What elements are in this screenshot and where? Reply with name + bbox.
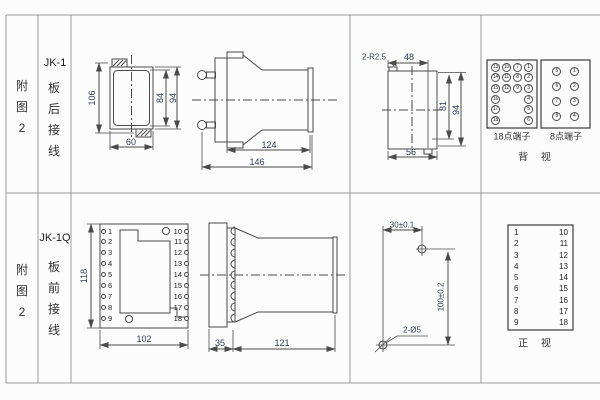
jk1-side-view — [192, 52, 338, 170]
terminal-circle — [184, 272, 189, 277]
terminal-row-1: 1 — [101, 227, 123, 235]
table-number-18: 18 — [559, 318, 568, 327]
terminal-circle — [184, 229, 189, 234]
terminal-number: 2 — [108, 237, 112, 246]
terminal-circle — [184, 239, 189, 244]
table-number-5: 5 — [514, 273, 518, 282]
terminal-8-label: 8点端子 — [550, 130, 582, 143]
terminal-16: 16 — [491, 95, 500, 104]
dim-118: 118 — [79, 269, 89, 283]
row2-model-label: JK-1Q — [38, 232, 72, 244]
terminal-circle — [101, 283, 106, 288]
terminal-number: 5 — [108, 270, 112, 279]
terminal-row-10: 10 — [163, 227, 189, 235]
dim-hole-spec: 2-Ø5 — [403, 326, 421, 335]
terminal-number: 14 — [174, 270, 182, 279]
dim-84: 84 — [155, 93, 165, 103]
drawing-sheet: 附图2 JK-1 板后接线 附图2 JK-1Q 板前接线 106 84 94 6… — [0, 0, 600, 400]
qfront-right-terminals: 101112131415161718 — [163, 227, 189, 322]
dim-146: 146 — [249, 157, 264, 167]
dim-30: 30±0.1 — [390, 221, 414, 230]
terminal-row-6: 6 — [101, 281, 123, 289]
terminal-3: 3 — [570, 97, 579, 106]
terminal-circle — [101, 294, 106, 299]
terminal-1: 1 — [570, 67, 579, 76]
terminal-number: 6 — [108, 281, 112, 290]
terminal-grid-18: 131071141182151293164175186 — [487, 60, 537, 128]
terminal-4: 4 — [524, 95, 533, 104]
terminal-circle — [184, 261, 189, 266]
terminal-row-3: 3 — [101, 249, 123, 257]
table-number-8: 8 — [514, 307, 518, 316]
terminal-18: 18 — [491, 116, 500, 125]
table-number-13: 13 — [559, 262, 568, 271]
table-number-10: 10 — [559, 228, 568, 237]
terminal-row-11: 11 — [163, 238, 189, 246]
terminal-15: 15 — [491, 84, 500, 93]
terminal-5: 5 — [524, 105, 533, 114]
terminal-row-5: 5 — [101, 271, 123, 279]
terminal-9: 9 — [513, 84, 522, 93]
terminal-7: 7 — [552, 97, 561, 106]
terminal-number: 4 — [108, 259, 112, 268]
terminal-row-7: 7 — [101, 292, 123, 300]
terminal-number: 17 — [174, 303, 182, 312]
dim-35: 35 — [215, 338, 225, 348]
row2-wiring-label: 板前接线 — [46, 257, 62, 341]
dim-121: 121 — [274, 338, 289, 348]
table-number-15: 15 — [559, 284, 568, 293]
dim-60: 60 — [126, 137, 136, 147]
terminal-circle — [101, 316, 106, 321]
terminal-number: 12 — [174, 248, 182, 257]
terminal-18-label: 18点端子 — [493, 130, 530, 143]
terminal-row-15: 15 — [163, 281, 189, 289]
terminal-circle — [184, 316, 189, 321]
terminal-circle — [184, 283, 189, 288]
terminal-row-8: 8 — [101, 303, 123, 311]
terminal-11: 11 — [502, 73, 511, 82]
terminal-5: 5 — [552, 67, 561, 76]
row1-wiring-label: 板后接线 — [46, 78, 62, 162]
terminal-12: 12 — [502, 84, 511, 93]
terminal-6: 6 — [524, 116, 533, 125]
dim-56: 56 — [406, 147, 416, 157]
table-number-1: 1 — [514, 228, 518, 237]
dim-124: 124 — [261, 140, 276, 150]
terminal-row-17: 17 — [163, 303, 189, 311]
terminal-circle — [101, 229, 106, 234]
terminal-circle — [101, 305, 106, 310]
terminal-circle — [101, 272, 106, 277]
table-number-12: 12 — [559, 251, 568, 260]
terminal-number: 9 — [108, 314, 112, 323]
terminal-number: 1 — [108, 227, 112, 236]
terminal-8: 8 — [552, 112, 561, 121]
table-number-6: 6 — [514, 284, 518, 293]
terminal-row-12: 12 — [163, 249, 189, 257]
row2-figure-label: 附图2 — [14, 260, 30, 323]
front-view-label: 正 视 — [518, 335, 556, 350]
terminal-8: 8 — [513, 73, 522, 82]
table-number-14: 14 — [559, 273, 568, 282]
terminal-number: 7 — [108, 292, 112, 301]
terminal-3: 3 — [524, 84, 533, 93]
terminal-row-9: 9 — [101, 314, 123, 322]
back-view-label: 背 视 — [518, 149, 556, 164]
terminal-number: 10 — [174, 227, 182, 236]
dim-106: 106 — [87, 90, 97, 105]
terminal-13: 13 — [491, 63, 500, 72]
terminal-circle — [184, 294, 189, 299]
terminal-number: 8 — [108, 303, 112, 312]
terminal-7: 7 — [513, 63, 522, 72]
dim-81: 81 — [438, 101, 448, 111]
terminal-row-16: 16 — [163, 292, 189, 300]
terminal-circle — [101, 239, 106, 244]
terminal-2: 2 — [570, 82, 579, 91]
terminal-14: 14 — [491, 73, 500, 82]
terminal-circle — [101, 250, 106, 255]
dim-100: 100±0.2 — [437, 283, 446, 312]
terminal-number: 18 — [174, 314, 182, 323]
terminal-row-14: 14 — [163, 271, 189, 279]
table-number-4: 4 — [514, 262, 518, 271]
dim-102: 102 — [136, 334, 151, 344]
table-number-17: 17 — [559, 307, 568, 316]
dim-94: 94 — [168, 93, 178, 103]
row1-model-label: JK-1 — [38, 57, 72, 69]
terminal-row-18: 18 — [163, 314, 189, 322]
terminal-number: 15 — [174, 281, 182, 290]
terminal-10: 10 — [502, 63, 511, 72]
table-number-7: 7 — [514, 296, 518, 305]
terminal-row-4: 4 — [101, 260, 123, 268]
terminal-circle — [184, 250, 189, 255]
terminal-17: 17 — [491, 105, 500, 114]
terminal-row-13: 13 — [163, 260, 189, 268]
terminal-4: 4 — [570, 112, 579, 121]
table-number-16: 16 — [559, 296, 568, 305]
terminal-number: 16 — [174, 292, 182, 301]
table-number-11: 11 — [560, 239, 568, 248]
terminal-grid-8: 51627384 — [541, 60, 590, 128]
front-table-left-col: 123456789 — [514, 228, 518, 327]
terminal-number: 13 — [174, 259, 182, 268]
row1-figure-label: 附图2 — [14, 76, 30, 139]
terminal-6: 6 — [552, 82, 561, 91]
dim-94-cutout: 94 — [451, 105, 461, 115]
dim-2-r2-5: 2-R2.5 — [362, 53, 386, 62]
qfront-left-terminals: 123456789 — [101, 227, 123, 322]
table-number-3: 3 — [514, 251, 518, 260]
jk1q-side-view — [200, 223, 345, 352]
front-table-right-col: 101112131415161718 — [540, 228, 568, 327]
table-number-2: 2 — [514, 239, 518, 248]
terminal-2: 2 — [524, 73, 533, 82]
terminal-1: 1 — [524, 63, 533, 72]
table-number-9: 9 — [514, 318, 518, 327]
terminal-circle — [101, 261, 106, 266]
terminal-number: 11 — [174, 237, 182, 246]
terminal-circle — [184, 305, 189, 310]
terminal-number: 3 — [108, 248, 112, 257]
dim-48: 48 — [404, 52, 414, 62]
terminal-row-2: 2 — [101, 238, 123, 246]
